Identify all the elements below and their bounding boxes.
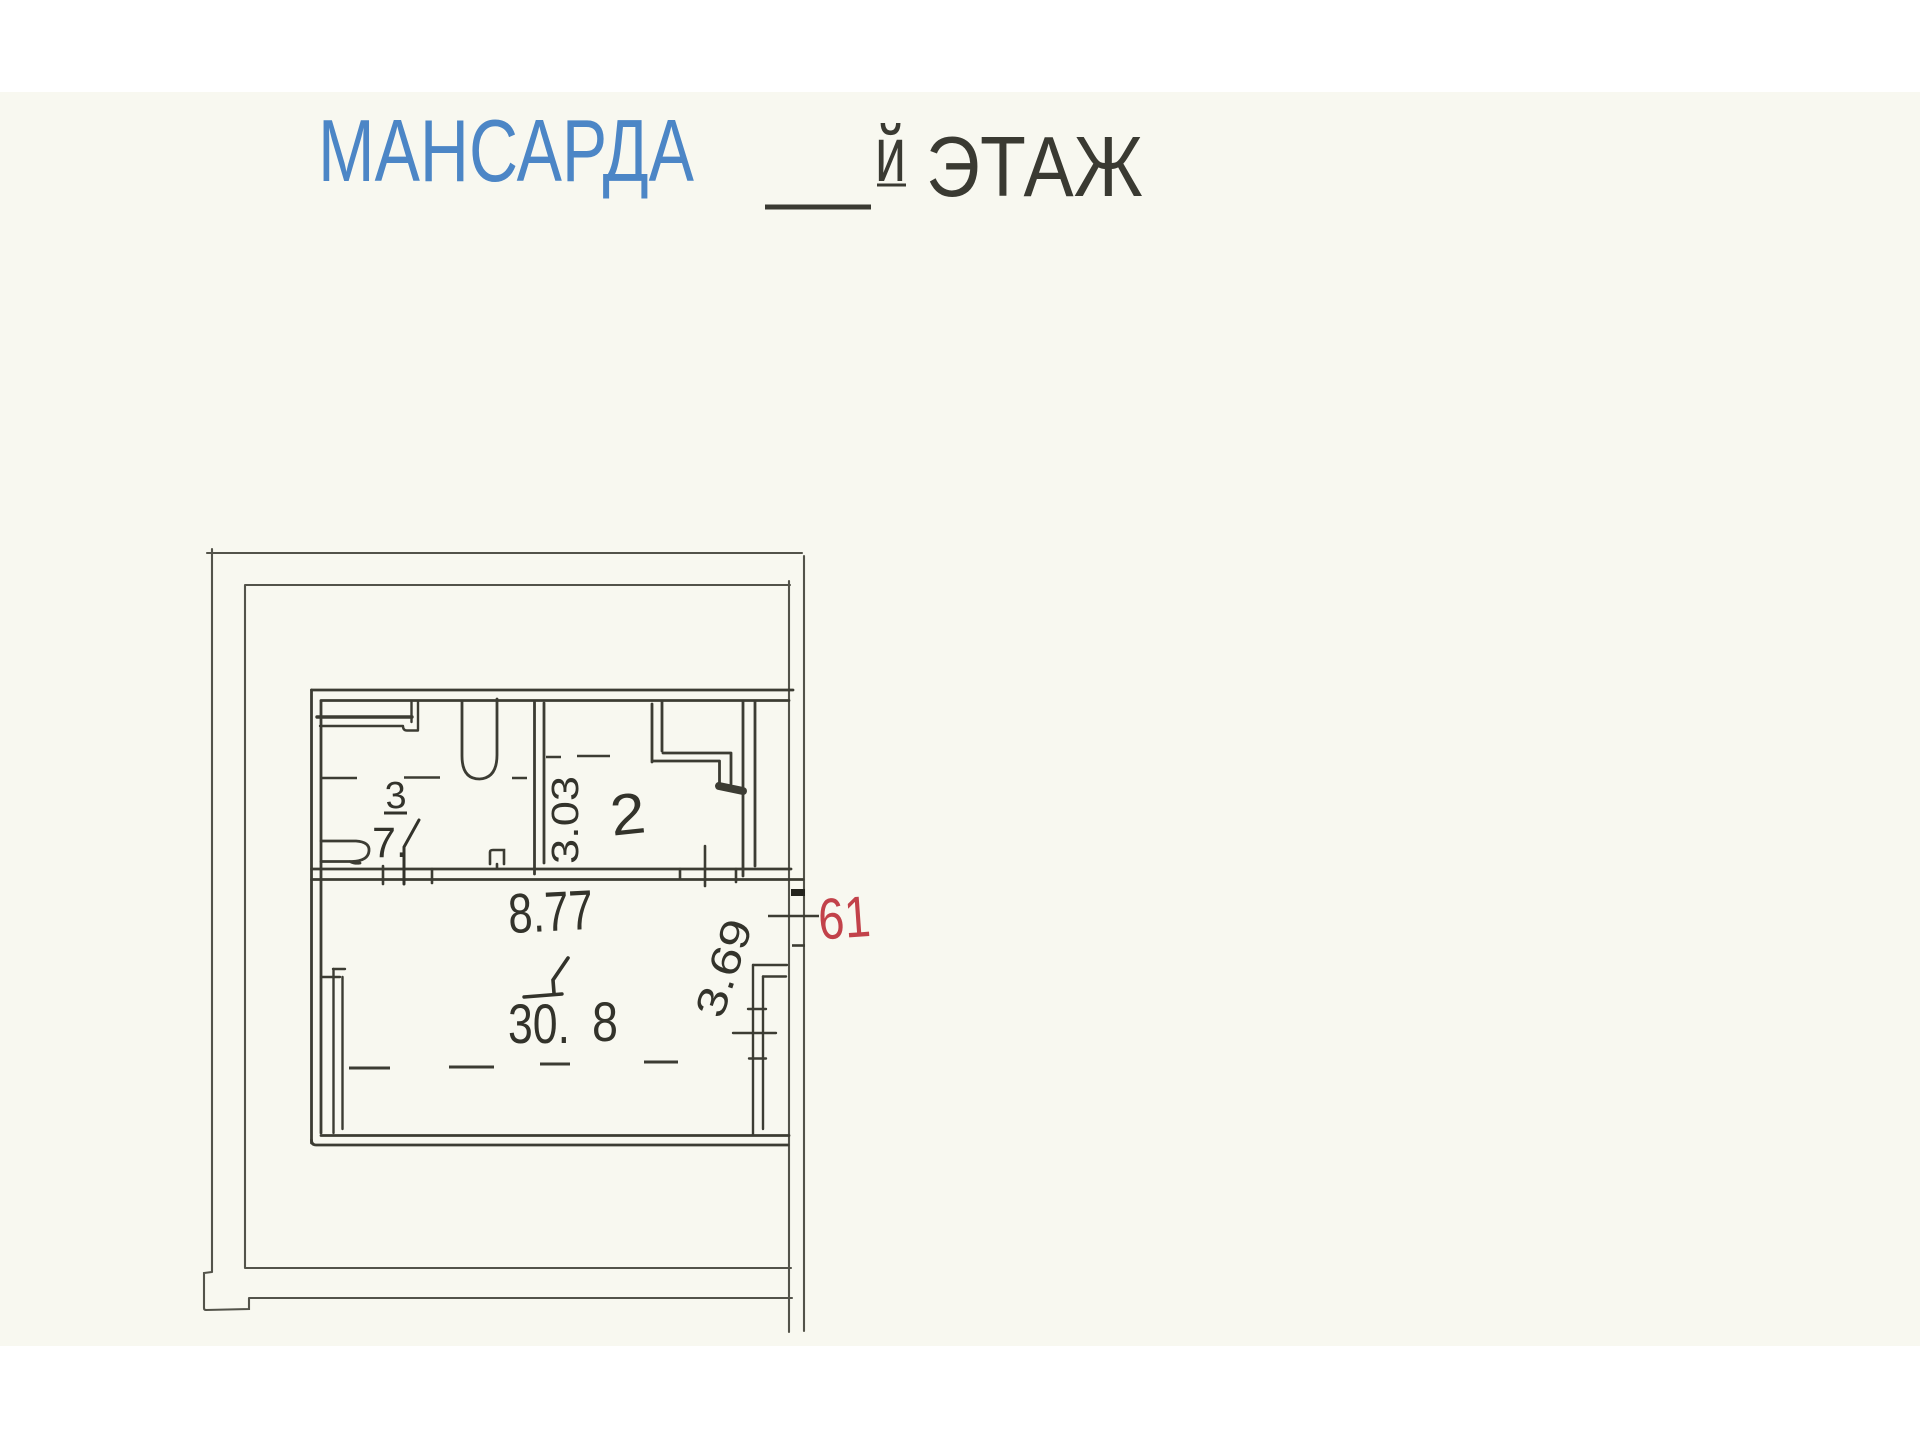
svg-text:8: 8 xyxy=(592,990,618,1053)
svg-text:МАНСАРДА: МАНСАРДА xyxy=(318,101,694,200)
svg-text:ЭТАЖ: ЭТАЖ xyxy=(926,120,1143,215)
svg-text:3.03: 3.03 xyxy=(545,776,587,864)
svg-text:7.: 7. xyxy=(372,819,408,867)
svg-text:61: 61 xyxy=(816,884,872,952)
svg-text:8.77: 8.77 xyxy=(506,878,594,945)
svg-text:30.: 30. xyxy=(508,992,570,1055)
svg-text:3: 3 xyxy=(384,774,408,817)
svg-text:2: 2 xyxy=(607,780,649,848)
